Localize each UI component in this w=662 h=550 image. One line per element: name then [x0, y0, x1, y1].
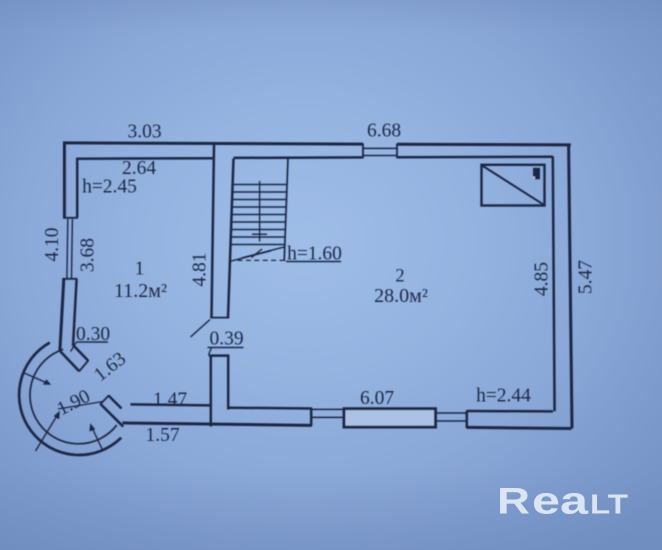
- svg-text:5.47: 5.47: [576, 260, 597, 294]
- svg-text:1.57: 1.57: [145, 425, 179, 446]
- svg-text:0.39: 0.39: [209, 329, 243, 350]
- svg-text:R: R: [497, 481, 530, 522]
- svg-text:2: 2: [395, 267, 404, 287]
- svg-text:1.47: 1.47: [153, 390, 187, 411]
- svg-text:h=2.44: h=2.44: [476, 386, 531, 407]
- svg-text:1: 1: [135, 259, 145, 280]
- svg-text:6.68: 6.68: [367, 121, 401, 142]
- svg-text:3.68: 3.68: [78, 238, 99, 272]
- svg-text:28.0м²: 28.0м²: [374, 285, 428, 307]
- svg-text:h=2.45: h=2.45: [82, 177, 137, 198]
- svg-text:4.85: 4.85: [532, 262, 553, 296]
- svg-text:4.81: 4.81: [190, 252, 211, 286]
- svg-text:ea: ea: [532, 481, 589, 523]
- svg-text:11.2м²: 11.2м²: [114, 280, 167, 302]
- svg-text:3.03: 3.03: [127, 122, 161, 143]
- svg-text:6.07: 6.07: [360, 388, 394, 409]
- svg-text:LT: LT: [590, 489, 628, 520]
- svg-text:4.10: 4.10: [42, 227, 63, 261]
